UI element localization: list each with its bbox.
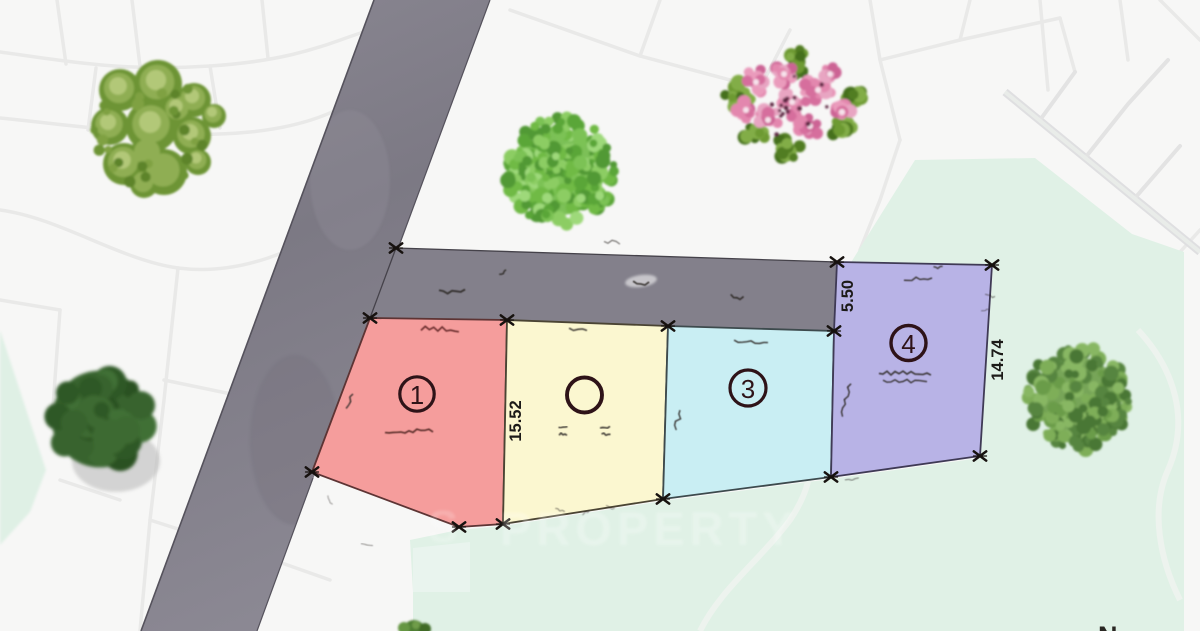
svg-text:PROPERTY: PROPERTY xyxy=(500,502,799,555)
svg-text:S: S xyxy=(428,501,458,552)
svg-text:5.50: 5.50 xyxy=(839,280,857,312)
svg-text:1: 1 xyxy=(410,380,424,410)
svg-text:15.52: 15.52 xyxy=(507,400,525,441)
svg-text:3: 3 xyxy=(741,374,755,404)
svg-text:4: 4 xyxy=(901,329,915,359)
svg-text:N: N xyxy=(1098,621,1118,631)
svg-text:14.74: 14.74 xyxy=(989,339,1007,381)
